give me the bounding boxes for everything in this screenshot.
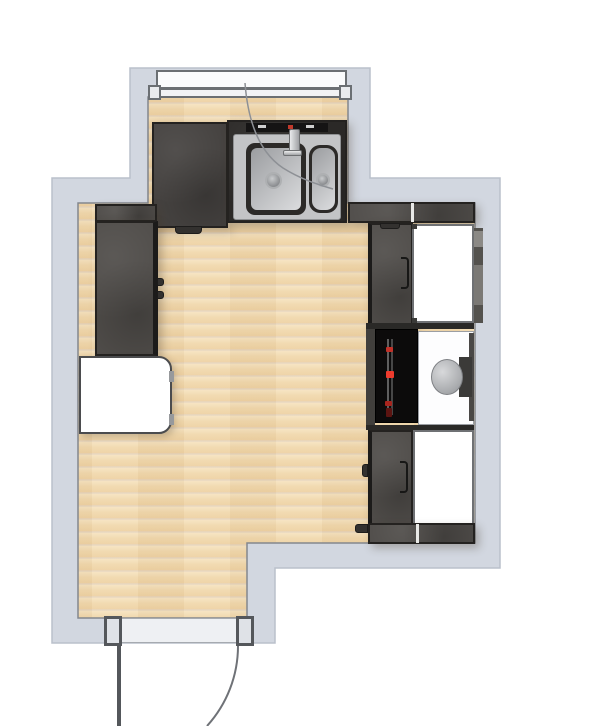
cabinet-handle [157,291,164,299]
sink-drain [265,172,282,189]
oven[interactable] [375,329,418,423]
sink-drain-small [316,173,330,187]
left-white-appliance[interactable] [79,356,172,434]
appliance-hinge [169,414,174,425]
tray-utensil [306,125,314,128]
corner-fitting [412,318,417,323]
wall-bracket [474,265,483,305]
upper-white-appliance[interactable] [412,224,474,323]
counter-seam [411,203,414,222]
window-sash[interactable] [156,70,347,89]
door-leaf[interactable] [117,645,121,726]
counter-handle [380,223,400,229]
oven-led-strip [386,408,392,417]
wall-bracket [474,231,483,247]
door-jamb-left [104,616,122,646]
tray-utensil [258,125,266,128]
lower-white-appliance[interactable] [413,430,474,525]
tall-cabinet-top [95,204,157,222]
door-handle [401,257,409,289]
oven-led [386,347,393,352]
cabinet-handle [362,464,368,477]
plinth-handle [355,524,368,533]
window-post-right [339,85,352,100]
door-opening [121,618,237,643]
oven-led [385,401,392,406]
oven-side-strip [366,329,375,425]
door-handle [400,461,408,493]
plinth-seam [416,524,419,543]
cabinet-plinth [368,523,475,544]
floor-plan-canvas [0,0,600,726]
cabinet-handle [157,278,164,286]
faucet-spout [283,150,302,156]
window-post-left [148,85,161,100]
door-jamb-right [236,616,254,646]
counter-left-section[interactable] [152,122,228,228]
appliance-hinge [169,371,174,382]
boiler[interactable] [431,359,463,395]
corner-fitting [412,224,417,229]
counter-handle [175,226,202,234]
window-sill [148,88,352,98]
tall-cabinet-left[interactable] [95,221,158,356]
oven-led [386,371,394,378]
